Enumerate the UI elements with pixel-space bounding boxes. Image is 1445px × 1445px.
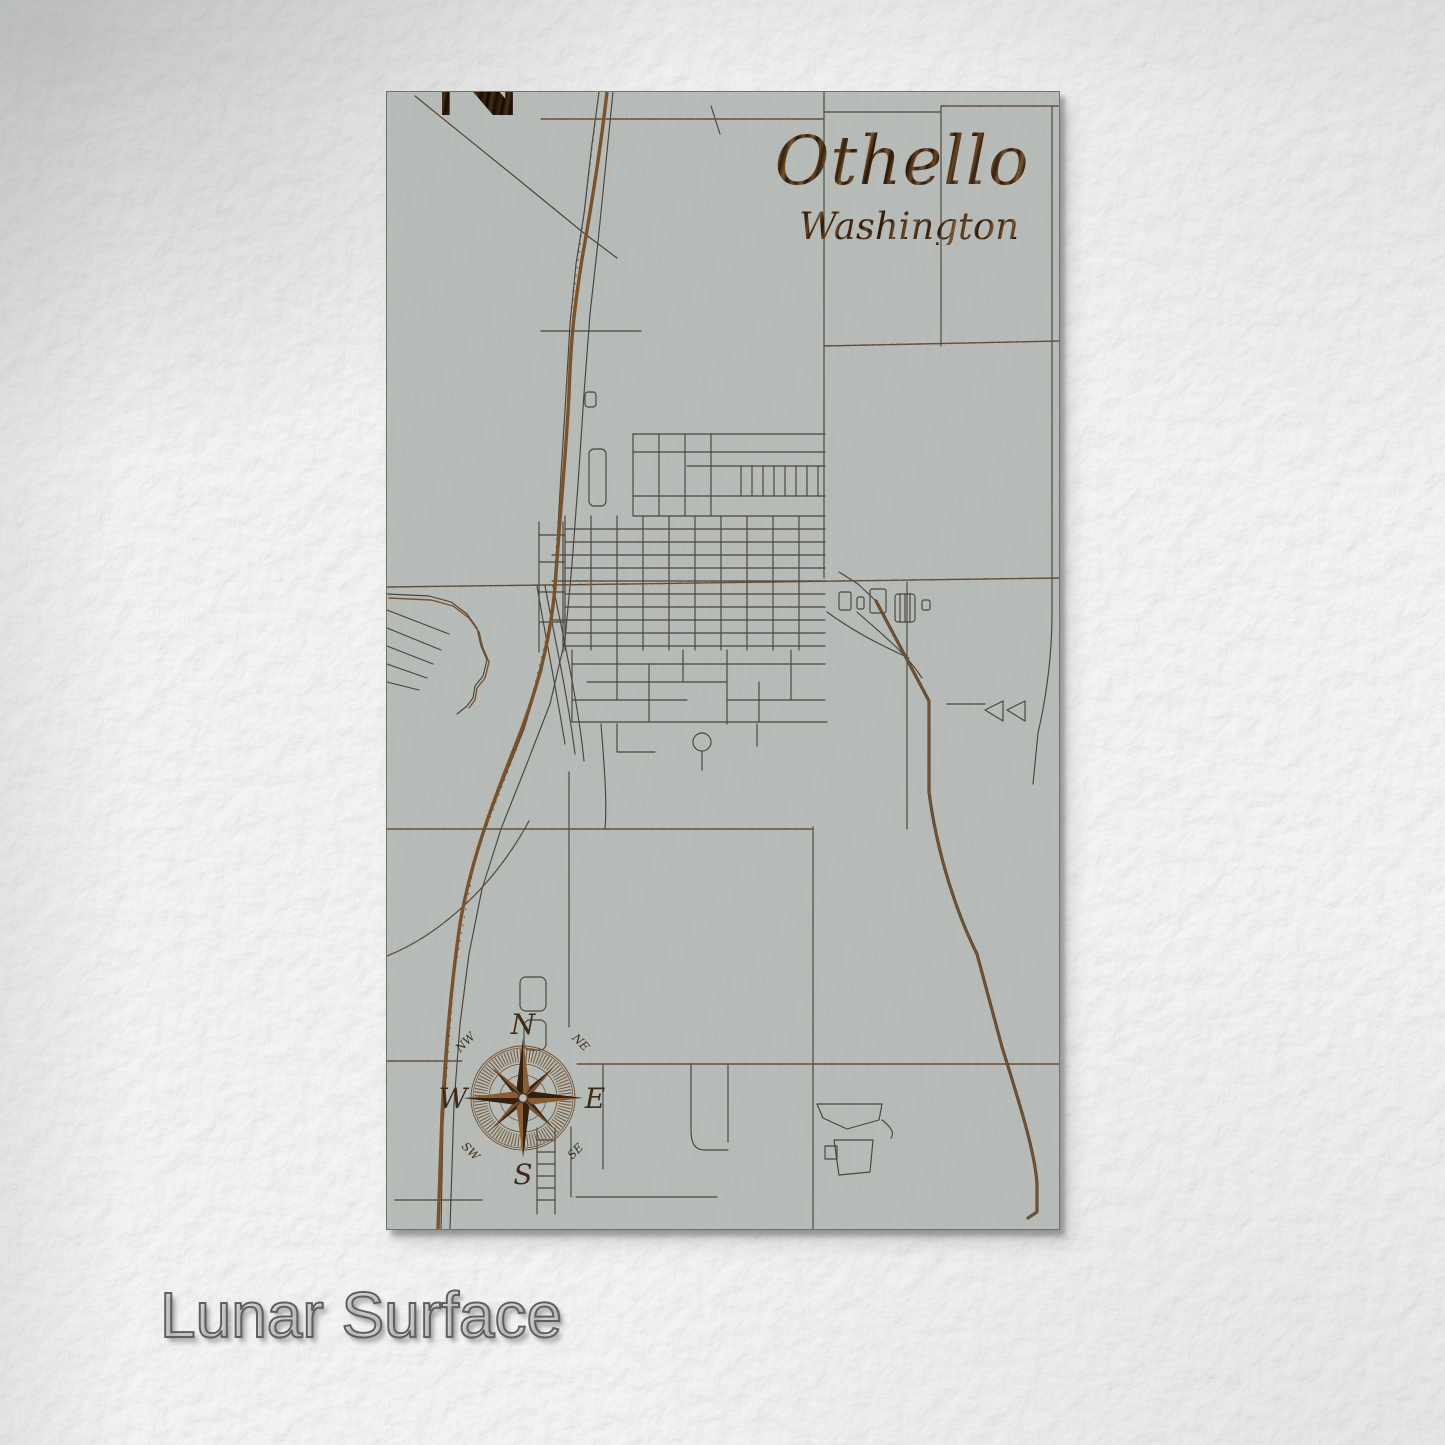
compass-label-west: W: [439, 1082, 470, 1115]
map-panel: N E S W NW NE SW SE N Othello Washington: [386, 91, 1060, 1230]
street-map: N E S W NW NE SW SE: [387, 92, 1059, 1229]
compass-hub: [518, 1093, 527, 1102]
compass-label-southeast: SE: [564, 1140, 586, 1162]
compass-label-north: N: [510, 1008, 537, 1041]
partial-letter-glyph: N: [427, 92, 515, 115]
compass-label-northeast: NE: [569, 1030, 593, 1054]
river-and-brown-roads: [387, 92, 1059, 1229]
product-photo: N E S W NW NE SW SE N Othello Washington…: [0, 0, 1445, 1445]
compass-rose: N E S W NW NE SW SE: [439, 1008, 606, 1191]
map-subtitle: Washington: [768, 208, 1050, 245]
partial-letter: N: [427, 92, 515, 115]
finish-label: Lunar Surface: [160, 1278, 562, 1352]
map-title: Othello: [761, 128, 1043, 195]
compass-label-south: S: [513, 1158, 532, 1191]
compass-label-east: E: [584, 1082, 605, 1115]
compass-label-northwest: NW: [452, 1029, 479, 1056]
compass-star: [463, 1038, 583, 1158]
compass-label-southwest: SW: [459, 1139, 484, 1164]
